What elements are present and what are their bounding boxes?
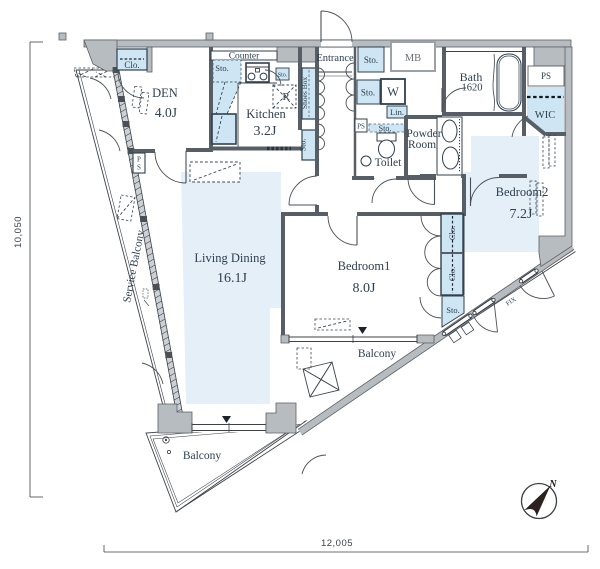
svg-text:Clo.: Clo.	[447, 226, 457, 240]
svg-text:7.2J: 7.2J	[510, 207, 534, 222]
svg-text:3.2J: 3.2J	[254, 124, 278, 139]
svg-text:10,050: 10,050	[13, 216, 24, 248]
svg-text:Bedroom1: Bedroom1	[338, 259, 391, 273]
svg-text:Balcony: Balcony	[183, 450, 222, 462]
svg-text:DEN: DEN	[152, 86, 178, 100]
svg-text:Entrance: Entrance	[316, 53, 354, 64]
svg-text:Room: Room	[408, 139, 436, 151]
svg-text:Sto.: Sto.	[299, 139, 308, 152]
svg-text:Shoes Box: Shoes Box	[300, 77, 309, 110]
svg-text:Sto.: Sto.	[446, 305, 459, 315]
svg-text:Balcony: Balcony	[358, 348, 397, 360]
svg-text:PS: PS	[357, 123, 365, 131]
svg-text:8.0J: 8.0J	[353, 281, 377, 296]
svg-text:N: N	[548, 479, 557, 490]
svg-text:R: R	[282, 91, 290, 103]
svg-text:Sto.: Sto.	[361, 88, 375, 98]
svg-text:4.0J: 4.0J	[155, 105, 177, 120]
svg-text:Living Dining: Living Dining	[194, 251, 266, 265]
svg-text:Sto.: Sto.	[215, 63, 228, 73]
svg-text:Sto.: Sto.	[379, 124, 392, 133]
svg-text:Clo.: Clo.	[124, 60, 139, 70]
svg-text:Toilet: Toilet	[375, 157, 402, 169]
svg-text:Kitchen: Kitchen	[246, 107, 286, 121]
svg-text:Lin.: Lin.	[390, 107, 404, 117]
svg-text:Sto.: Sto.	[278, 73, 288, 79]
svg-text:12,005: 12,005	[321, 538, 353, 549]
svg-text:P: P	[137, 156, 141, 164]
svg-text:Sto.: Sto.	[364, 55, 378, 65]
svg-text:W: W	[387, 85, 399, 99]
svg-text:PS: PS	[541, 71, 551, 81]
svg-text:Clo.: Clo.	[447, 267, 457, 281]
svg-text:16.1J: 16.1J	[217, 271, 248, 286]
svg-text:MB: MB	[405, 53, 421, 64]
svg-text:Bedroom2: Bedroom2	[496, 185, 549, 199]
svg-text:S: S	[137, 164, 141, 172]
svg-text:WIC: WIC	[535, 110, 555, 121]
